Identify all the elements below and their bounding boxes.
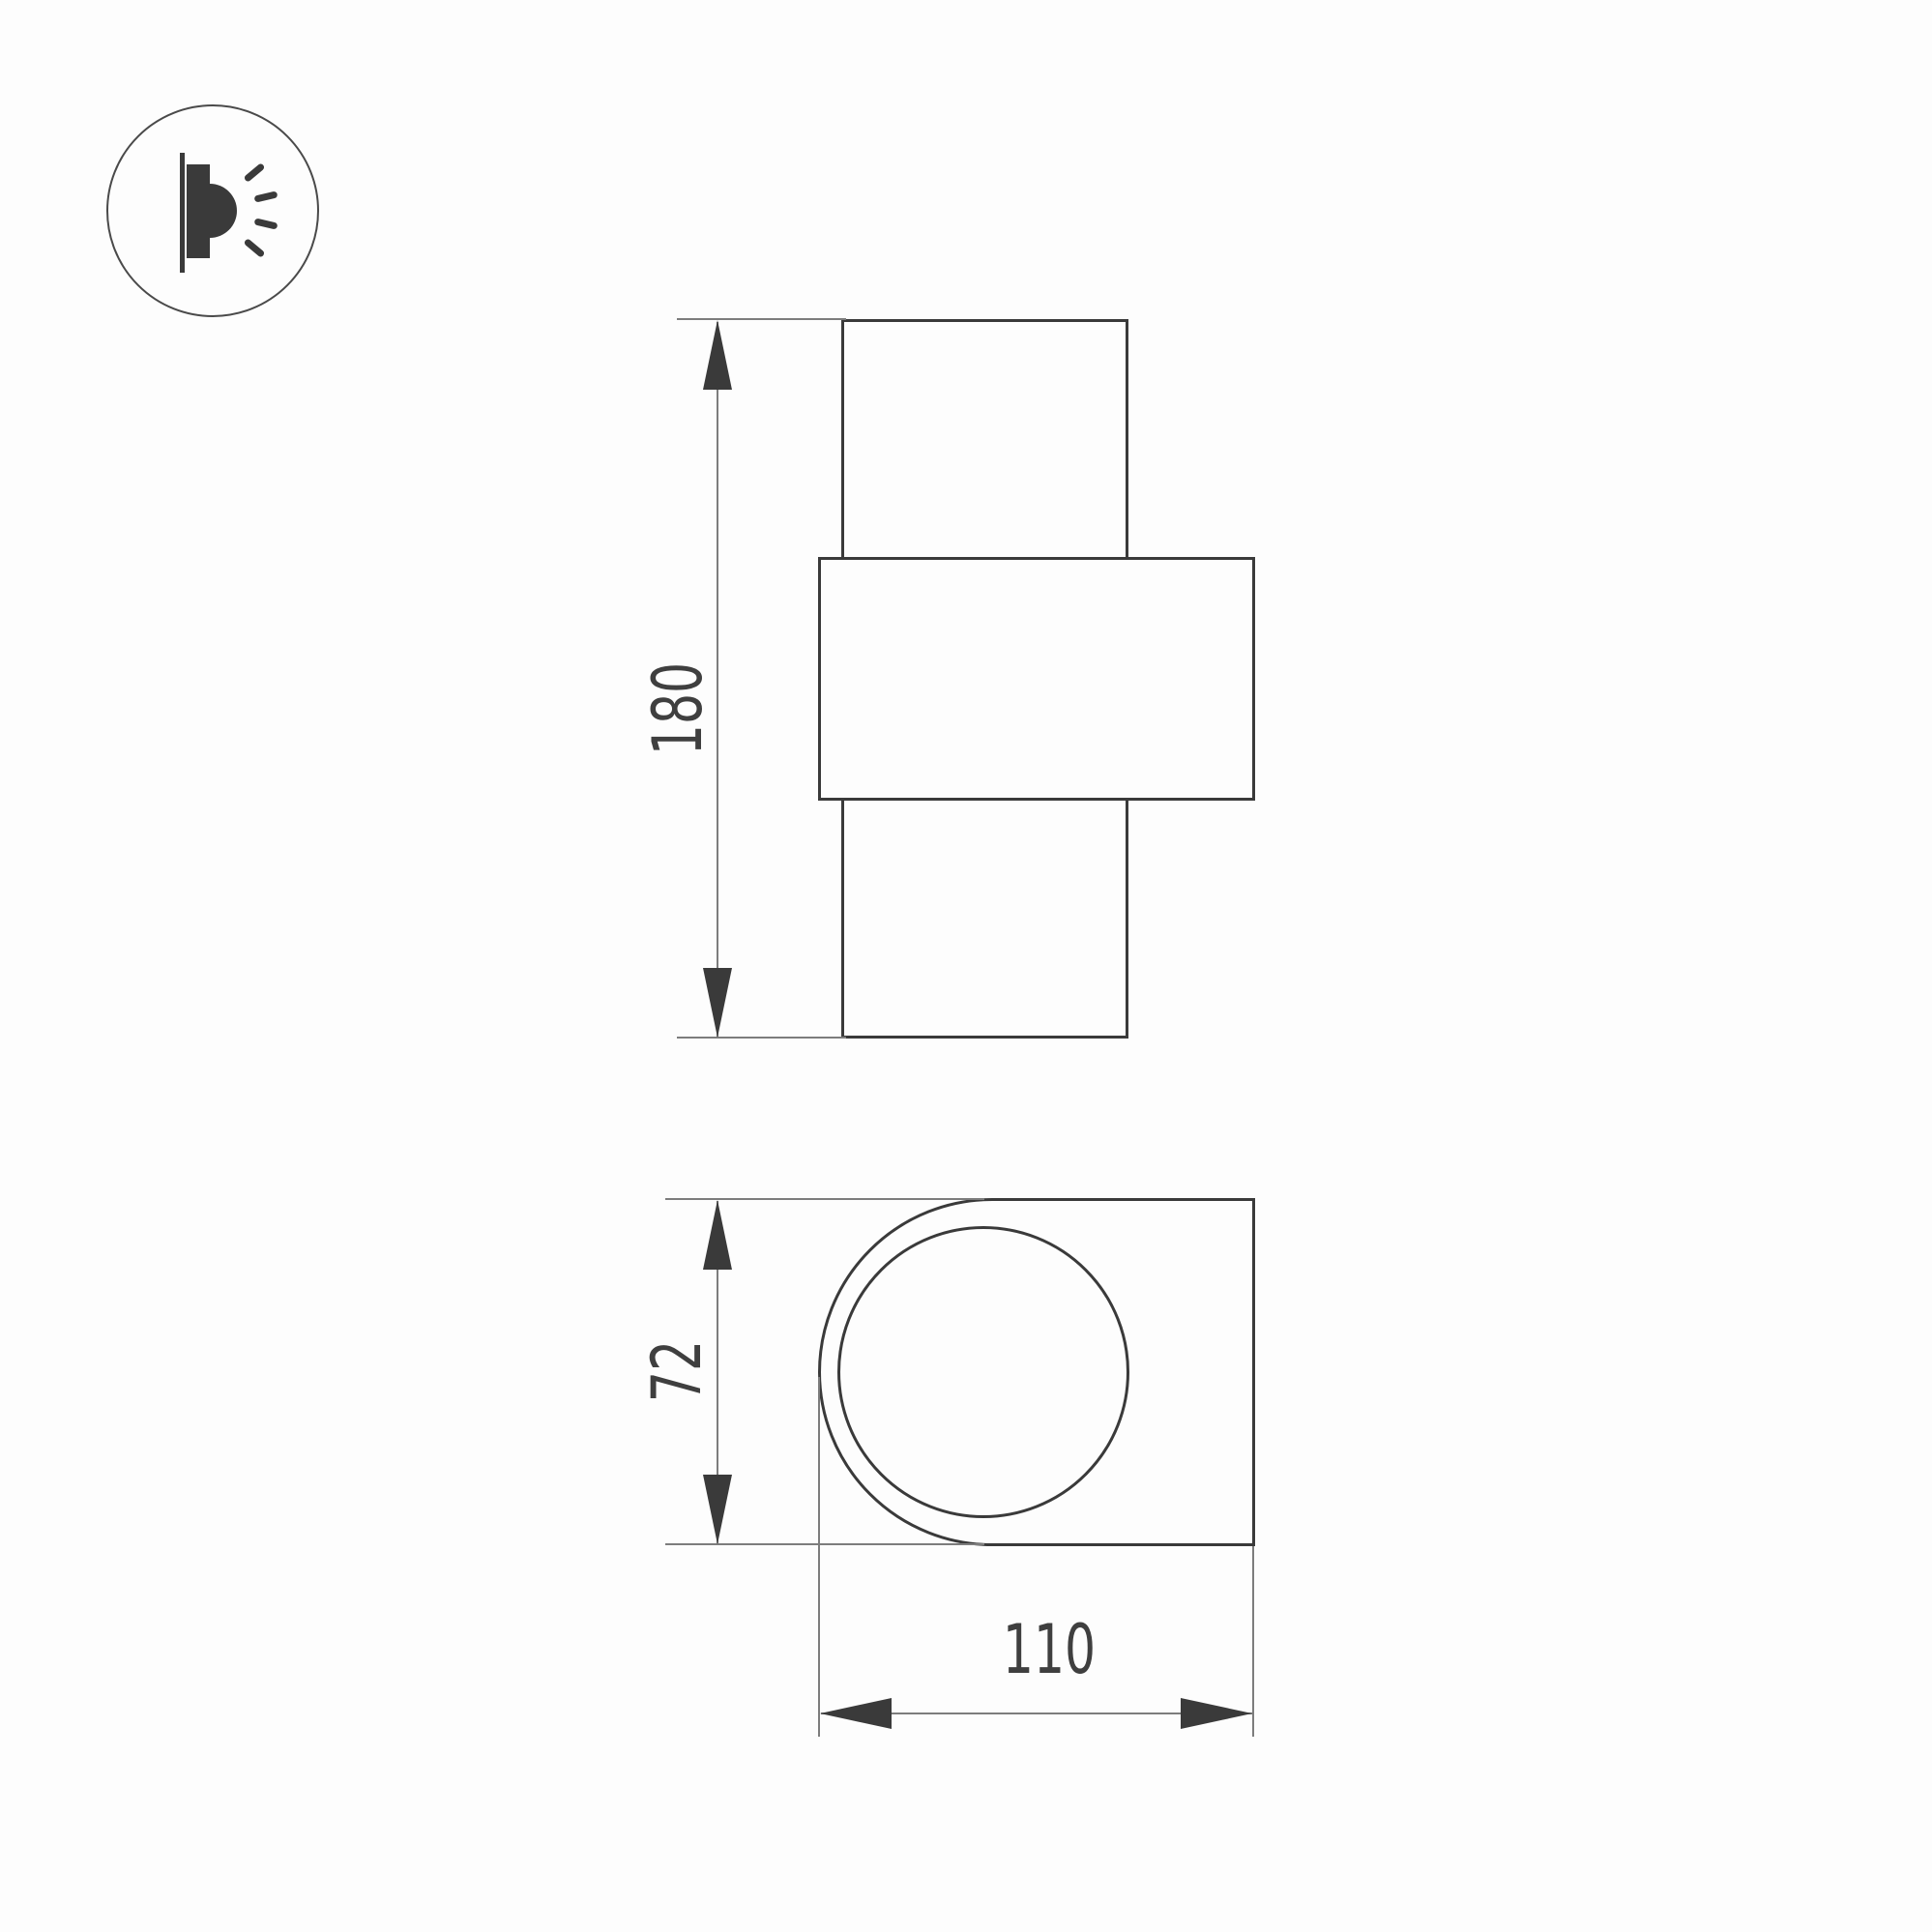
wall-surface-line xyxy=(180,153,185,273)
arrowhead-down-72 xyxy=(703,1475,732,1544)
arrowhead-up-72 xyxy=(703,1200,732,1270)
arrowhead-up-180 xyxy=(703,320,732,390)
extension-line-left-110 xyxy=(818,1377,820,1737)
arrowhead-down-180 xyxy=(703,968,732,1038)
arrowhead-right-110 xyxy=(1181,1698,1252,1729)
extension-line-right-110 xyxy=(1252,1546,1254,1737)
arrowhead-left-110 xyxy=(820,1698,892,1729)
dimension-label-110: 110 xyxy=(980,1616,1119,1683)
dimension-label-180: 180 xyxy=(644,639,712,778)
front-view-mounting-band xyxy=(818,557,1255,801)
side-view-lens-circle xyxy=(837,1226,1129,1518)
dimension-drawing-canvas: 180 72 110 xyxy=(0,0,1932,1932)
lamp-body-shape xyxy=(187,164,210,258)
dimension-label-72: 72 xyxy=(643,1302,711,1441)
